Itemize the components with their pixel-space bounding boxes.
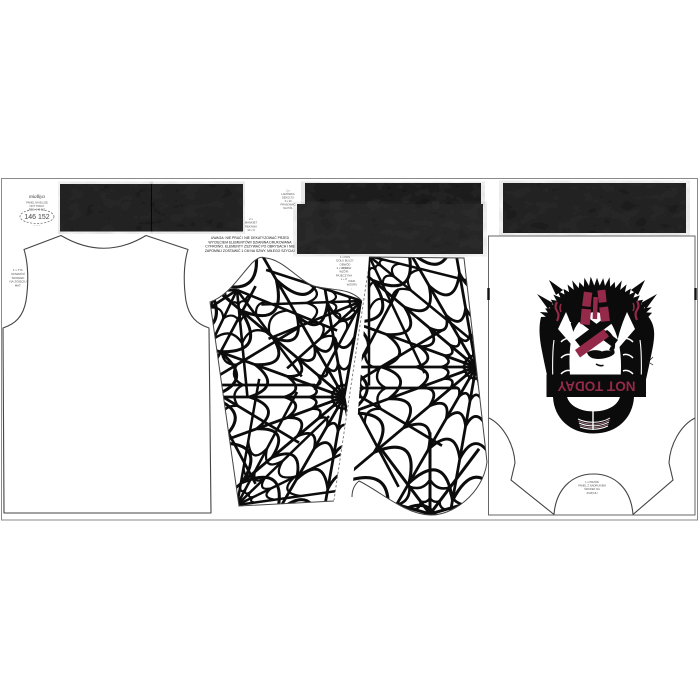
svg-text:ZGIĘCIU: ZGIĘCIU	[587, 491, 598, 495]
svg-text:MAT.: MAT.	[15, 284, 22, 288]
svg-text:L + P: L + P	[341, 277, 348, 281]
svg-text:10 x 9: 10 x 9	[247, 228, 255, 232]
svg-text:CYFROWO. ELEMENTY ZSZYWAĆ PO O: CYFROWO. ELEMENTY ZSZYWAĆ PO OBRYSACH I …	[205, 244, 295, 249]
svg-text:WYCIĘCIEM ELEMENTÓW! DZIANINA: WYCIĘCIEM ELEMENTÓW! DZIANINA DRUKOWANA	[208, 239, 292, 244]
svg-text:PANEL NA BLUZĘ: PANEL NA BLUZĘ	[26, 201, 48, 205]
svg-text:146 152: 146 152	[24, 214, 49, 221]
svg-text:DEKOLTU: DEKOLTU	[282, 196, 294, 200]
svg-text:ZAPOMNIJ ZOSTAWIĆ 1 CM NA SZWY: ZAPOMNIJ ZOSTAWIĆ 1 CM NA SZWY. MIŁEGO S…	[205, 248, 295, 253]
svg-text:mialkya: mialkya	[29, 195, 45, 200]
svg-text:PANEL Z NADRUKIEM: PANEL Z NADRUKIEM	[578, 484, 607, 488]
svg-text:3 x 40: 3 x 40	[284, 199, 292, 203]
svg-text:UWAGA: NIE PRAĆ I NIE DEKATYZ: UWAGA: NIE PRAĆ I NIE DEKATYZOWAĆ PRZED	[211, 235, 290, 240]
svg-text:NOT TODAY: NOT TODAY	[557, 379, 635, 394]
svg-text:~ ~ ~: ~ ~ ~	[34, 224, 41, 228]
svg-text:REG. 146-152: REG. 146-152	[29, 208, 46, 212]
svg-text:NOT TODAY: NOT TODAY	[30, 204, 45, 208]
